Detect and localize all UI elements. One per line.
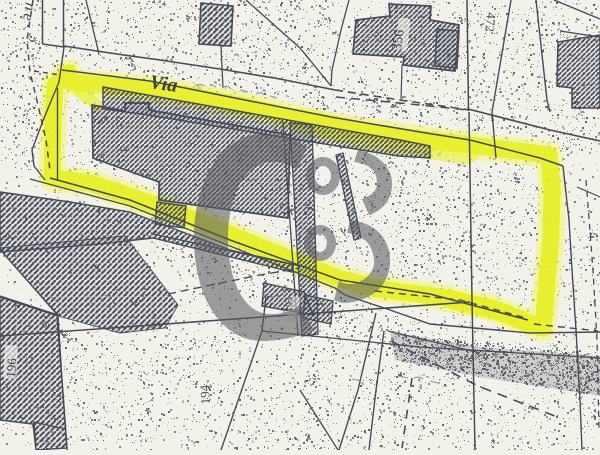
svg-text:ne: ne	[18, 1, 38, 25]
svg-text:196: 196	[3, 357, 19, 378]
svg-text:194: 194	[197, 384, 213, 405]
svg-text:356: 356	[390, 29, 407, 52]
svg-text:Via: Via	[148, 71, 179, 97]
svg-text:472: 472	[482, 12, 499, 33]
